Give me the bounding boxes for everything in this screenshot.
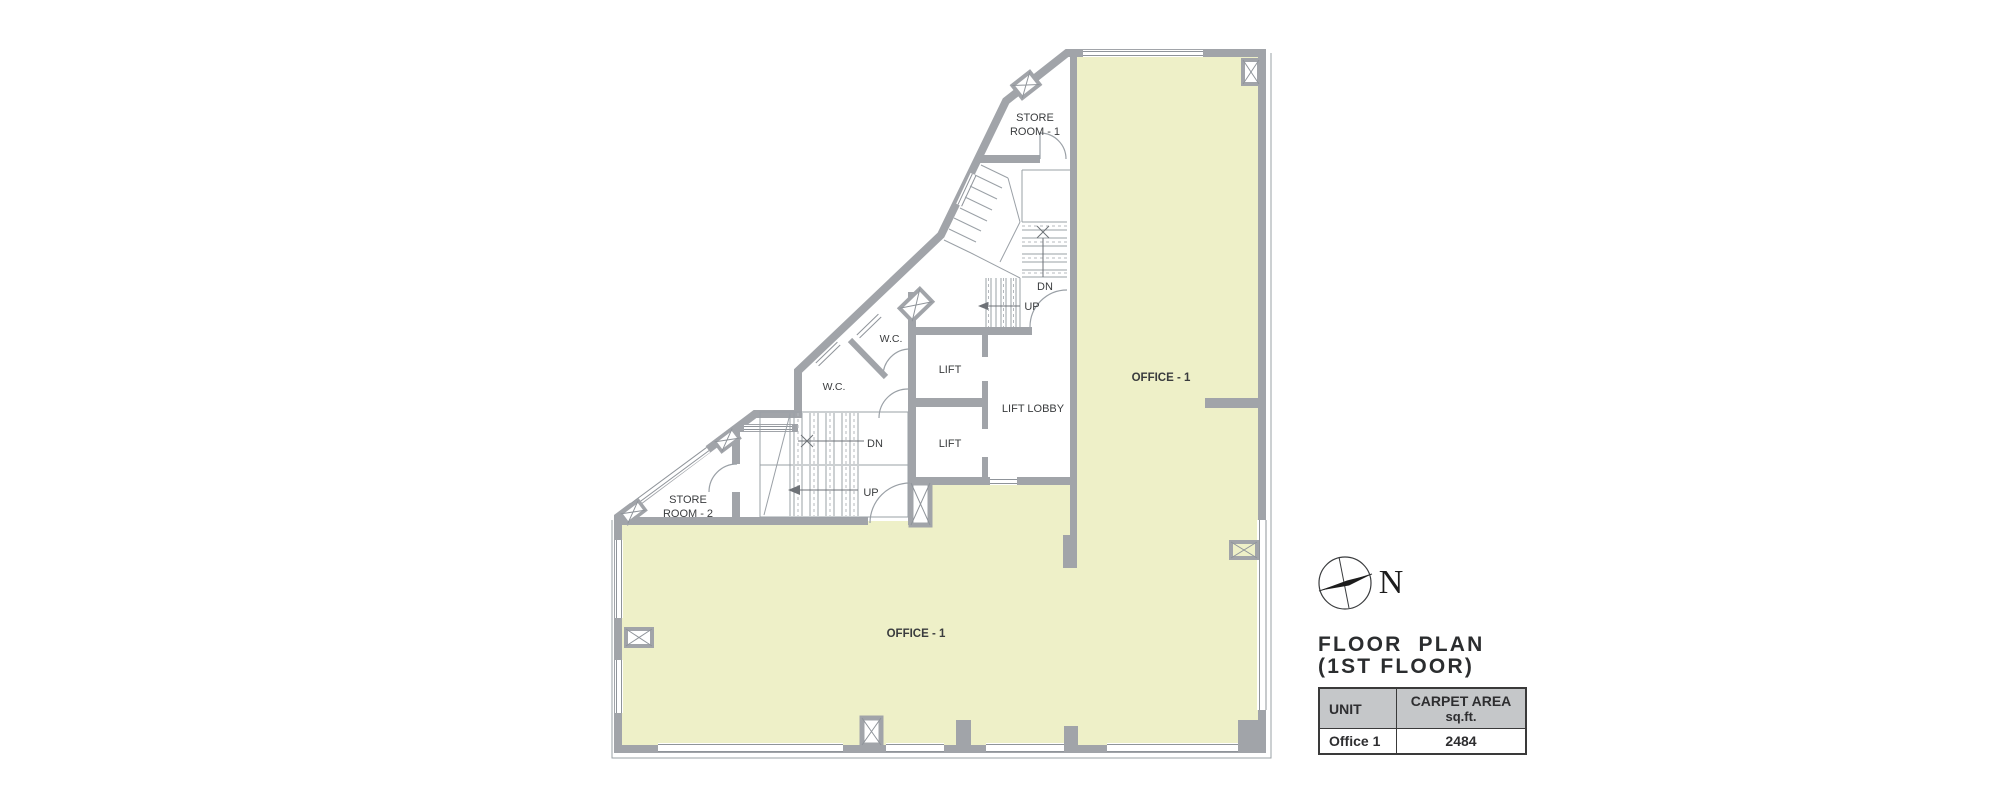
label-office-bottom: OFFICE - 1 (887, 628, 946, 640)
wc-divider-wall (850, 340, 886, 377)
label-wc-lower: W.C. (823, 381, 846, 393)
column-top-right (1243, 60, 1259, 84)
label-lift-upper: LIFT (939, 364, 962, 376)
column-bottom-stub-2 (1064, 726, 1078, 745)
label-up-lower: UP (863, 487, 878, 499)
table-cell-unit-office-1: Office 1 (1320, 729, 1397, 753)
door-wc-lower (879, 389, 908, 418)
plan-title-line1: FLOOR PLAN (1318, 634, 1485, 656)
table-header-unit: UNIT (1320, 689, 1397, 729)
lobby-opening (990, 478, 1017, 485)
column-bottom-stub-1 (956, 720, 971, 745)
column-office-door (911, 483, 930, 525)
table-cell-carpet-area-office-1: 2484 (1397, 729, 1525, 753)
door-store-room-2 (709, 464, 737, 492)
north-compass: N (1319, 557, 1403, 609)
label-store-room-2-line2: ROOM - 2 (663, 508, 713, 520)
label-up-upper: UP (1024, 301, 1039, 313)
label-wc-upper: W.C. (880, 333, 903, 345)
plan-title-line2: (1ST FLOOR) (1318, 656, 1485, 678)
label-dn-upper: DN (1037, 281, 1053, 293)
column-right-x (1231, 542, 1257, 558)
table-header-carpet-area: CARPET AREA sq.ft. (1397, 689, 1525, 729)
label-lift-lobby: LIFT LOBBY (1002, 403, 1065, 415)
column-bottom-right-corner (1238, 720, 1266, 753)
carpet-area-table: UNIT CARPET AREA sq.ft. Office 1 2484 (1318, 687, 1527, 755)
column-diagonal-c (900, 289, 933, 321)
label-office-right: OFFICE - 1 (1132, 372, 1191, 384)
diagonal-windows (630, 173, 978, 508)
column-bottom-x (862, 718, 881, 745)
column-left-x (626, 629, 652, 646)
label-store-room-2-line1: STORE (669, 494, 707, 506)
label-lift-lower: LIFT (939, 438, 962, 450)
floor-plan-svg: STORE ROOM - 1 STORE ROOM - 2 W.C. W.C. … (0, 0, 2000, 806)
door-wc-upper (883, 349, 910, 376)
label-dn-lower: DN (867, 438, 883, 450)
page: { "colors": { "wall": "#a1a4a9", "office… (0, 0, 2000, 806)
label-store-room-1-line1: STORE (1016, 112, 1054, 124)
label-store-room-1-line2: ROOM - 1 (1010, 126, 1060, 138)
plan-title-block: FLOOR PLAN (1ST FLOOR) (1318, 634, 1485, 678)
compass-north-letter: N (1379, 564, 1404, 601)
